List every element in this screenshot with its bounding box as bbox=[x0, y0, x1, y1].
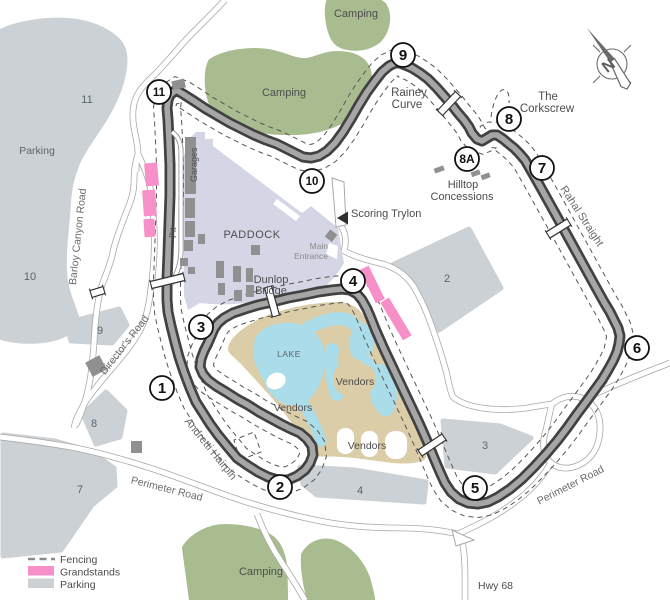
svg-text:Parking: Parking bbox=[19, 145, 55, 157]
svg-text:3: 3 bbox=[482, 440, 488, 452]
svg-text:Grandstands: Grandstands bbox=[60, 567, 120, 579]
svg-text:Vendors: Vendors bbox=[336, 376, 375, 388]
svg-text:The: The bbox=[538, 91, 558, 103]
svg-text:Hilltop: Hilltop bbox=[448, 179, 479, 191]
svg-text:11: 11 bbox=[81, 94, 92, 106]
svg-text:8: 8 bbox=[505, 111, 513, 128]
svg-text:Pit: Pit bbox=[168, 227, 178, 238]
svg-text:2: 2 bbox=[444, 273, 450, 285]
svg-text:PADDOCK: PADDOCK bbox=[223, 229, 280, 241]
svg-text:6: 6 bbox=[633, 340, 641, 357]
svg-text:8A: 8A bbox=[459, 152, 475, 166]
svg-text:8: 8 bbox=[91, 418, 97, 430]
svg-text:Curve: Curve bbox=[392, 99, 423, 111]
svg-text:11: 11 bbox=[153, 87, 166, 99]
svg-text:Hwy 68: Hwy 68 bbox=[478, 580, 513, 592]
svg-text:Camping: Camping bbox=[262, 87, 306, 99]
svg-text:Vendors: Vendors bbox=[348, 440, 387, 452]
svg-text:Main: Main bbox=[310, 241, 329, 251]
svg-text:LAKE: LAKE bbox=[277, 349, 301, 359]
svg-text:Camping: Camping bbox=[239, 566, 283, 578]
svg-text:5: 5 bbox=[471, 480, 479, 497]
svg-text:Garages: Garages bbox=[189, 147, 199, 182]
svg-text:Parking: Parking bbox=[60, 579, 96, 591]
svg-text:Vendors: Vendors bbox=[274, 402, 313, 414]
svg-text:9: 9 bbox=[399, 47, 407, 64]
svg-text:Concessions: Concessions bbox=[431, 191, 494, 203]
svg-text:4: 4 bbox=[349, 273, 358, 290]
svg-text:Corkscrew: Corkscrew bbox=[520, 103, 575, 115]
svg-text:7: 7 bbox=[538, 160, 546, 177]
svg-text:2: 2 bbox=[276, 479, 284, 496]
svg-text:4: 4 bbox=[357, 485, 363, 497]
svg-text:10: 10 bbox=[306, 176, 319, 188]
svg-text:3: 3 bbox=[197, 319, 205, 336]
svg-text:9: 9 bbox=[97, 325, 103, 337]
svg-text:1: 1 bbox=[158, 380, 166, 397]
svg-text:Scoring Trylon: Scoring Trylon bbox=[351, 208, 421, 220]
svg-text:Entrance: Entrance bbox=[294, 251, 328, 261]
svg-text:7: 7 bbox=[77, 484, 83, 496]
svg-text:Camping: Camping bbox=[334, 8, 378, 20]
svg-text:10: 10 bbox=[24, 271, 36, 283]
svg-text:Bridge: Bridge bbox=[255, 285, 287, 297]
svg-text:Fencing: Fencing bbox=[60, 554, 98, 566]
svg-text:Rainey: Rainey bbox=[391, 87, 427, 99]
